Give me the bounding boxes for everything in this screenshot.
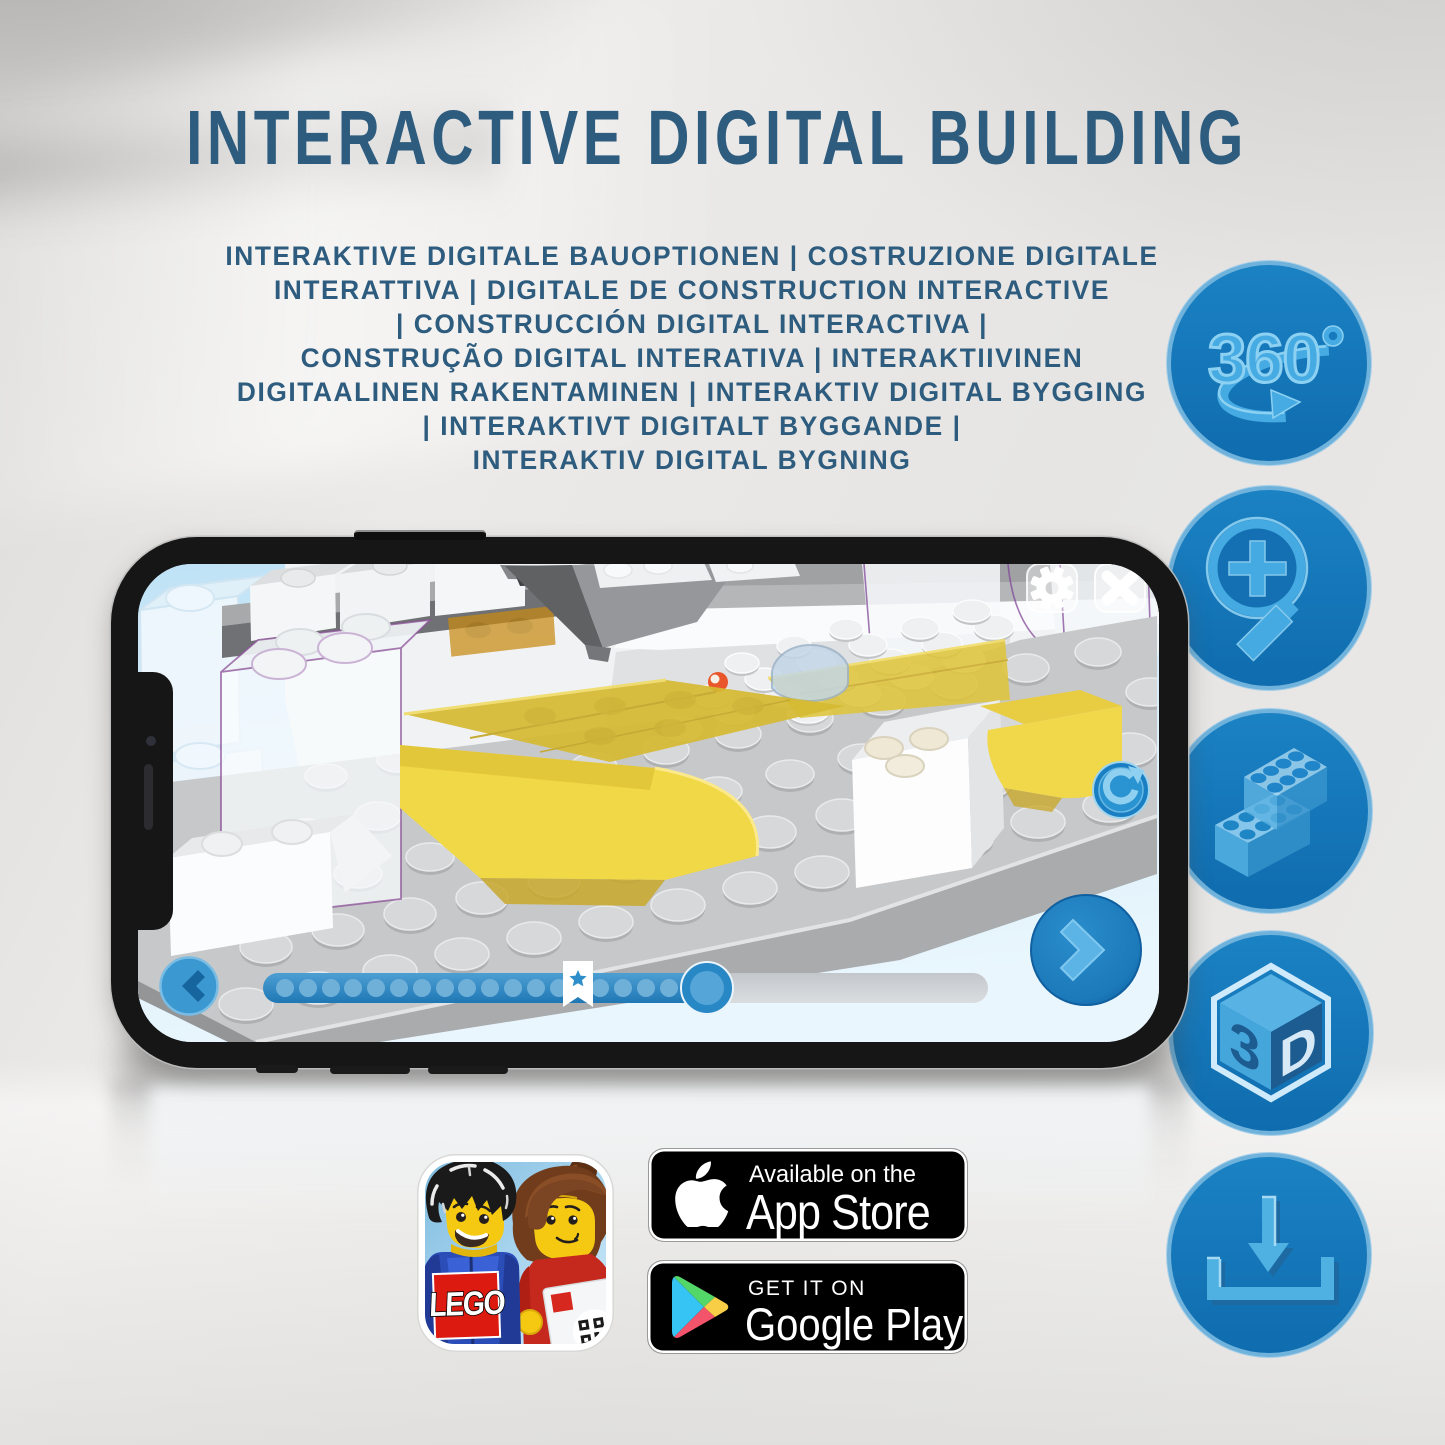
svg-text:360: 360 bbox=[1208, 320, 1320, 397]
svg-text:LEGO: LEGO bbox=[429, 1283, 506, 1323]
